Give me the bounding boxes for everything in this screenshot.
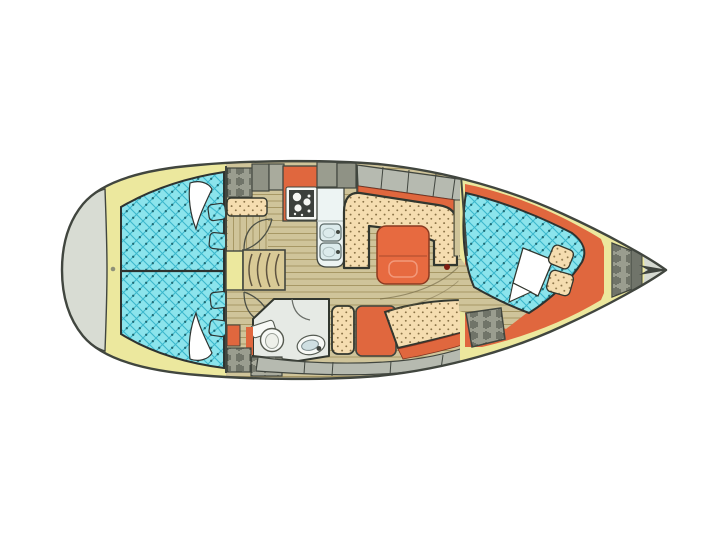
locker-grey-3 [317,162,337,187]
locker-grey-1 [252,164,269,191]
locker-grey-2 [269,164,284,190]
boat-floorplan-canvas [0,0,720,540]
hull-interior [62,155,700,390]
toilet-bowl [266,334,279,349]
faucet-2 [336,250,340,254]
compression-post [444,264,450,270]
galley-bench [227,198,267,216]
swim-platform-transom [62,189,107,351]
locker-grey-4 [337,163,356,188]
locker-hatch-texture-2 [227,348,251,372]
floorplan-svg [0,0,720,540]
head-side-seat [332,306,354,354]
companionway-sill [226,251,243,290]
salon-table [377,226,429,284]
orange-locker-aft [227,325,240,346]
locker-hatch-texture [227,168,252,197]
deck-fitting [111,267,116,272]
faucet-1 [336,230,340,234]
